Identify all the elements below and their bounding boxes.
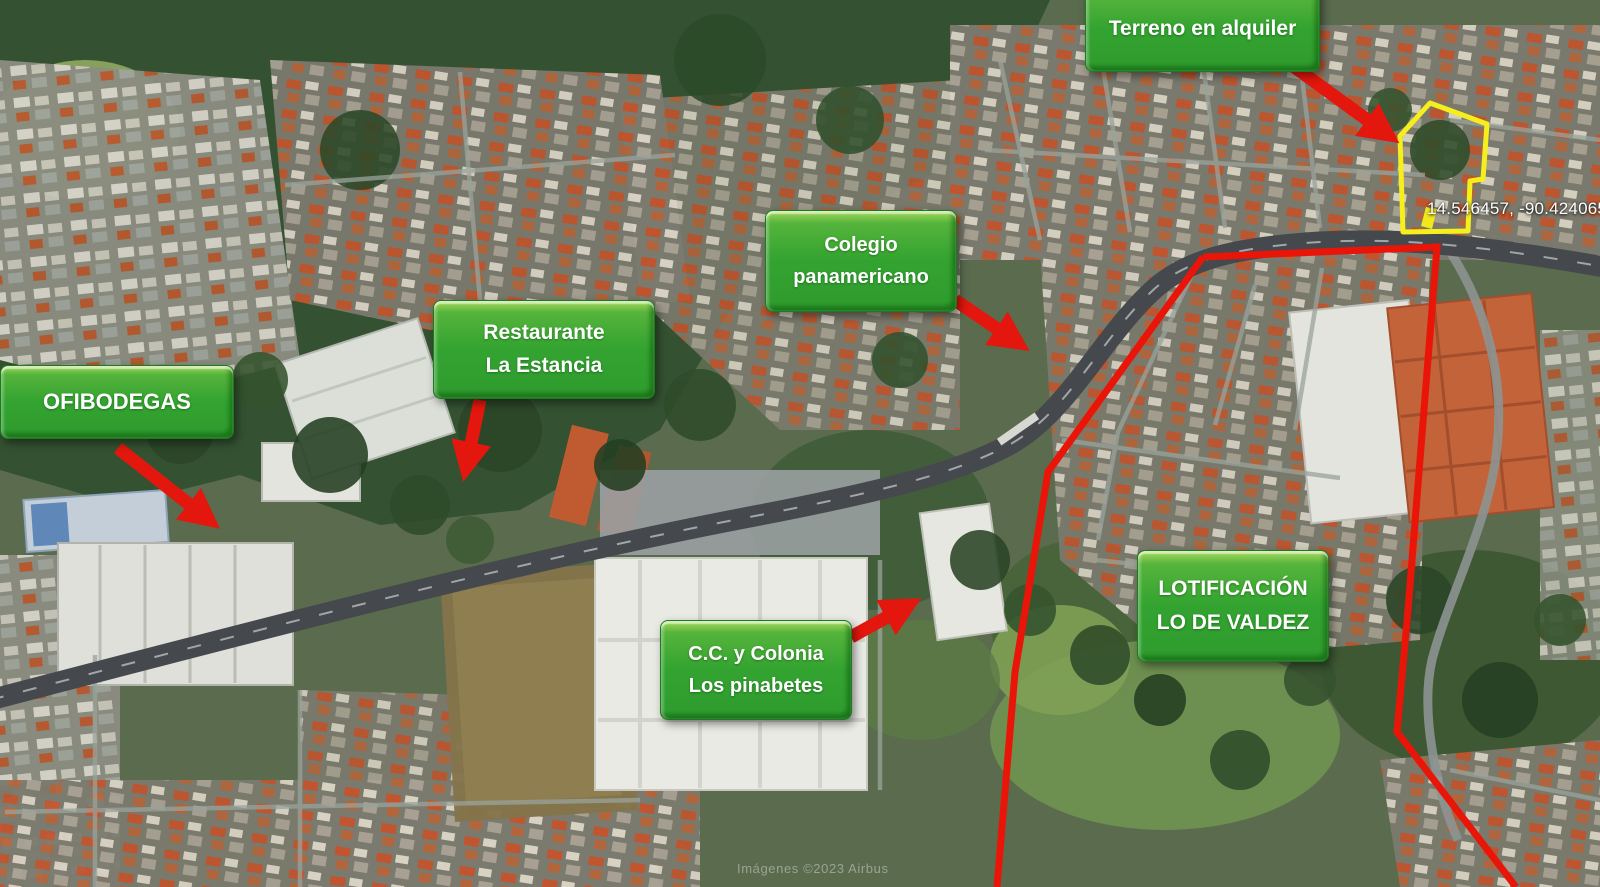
label-text: Terreno en alquiler [1109, 16, 1297, 42]
label-line: panamericano [793, 265, 929, 290]
label-terreno-en-alquiler: Terreno en alquiler [1085, 0, 1320, 72]
label-line: LOTIFICACIÓN [1158, 576, 1307, 602]
label-cc-y-colonia-los-pinabetes: C.C. y Colonia Los pinabetes [660, 620, 852, 720]
coordinates-text: 14.546457, -90.424065 [1427, 199, 1600, 219]
label-line: Colegio [824, 233, 897, 258]
label-text: OFIBODEGAS [43, 388, 191, 416]
label-line: Restaurante [483, 320, 604, 346]
satellite-basemap [0, 0, 1600, 887]
label-line: C.C. y Colonia [688, 642, 824, 667]
label-line: La Estancia [486, 353, 603, 379]
imagery-watermark: Imágenes ©2023 Airbus [737, 861, 889, 876]
label-line: LO DE VALDEZ [1157, 610, 1309, 636]
annotated-satellite-map: Terreno en alquiler Colegio panamericano… [0, 0, 1600, 887]
urban-zone [0, 60, 300, 400]
urban-zone [1380, 740, 1600, 887]
label-colegio-panamericano: Colegio panamericano [765, 210, 957, 312]
label-lotificacion-lo-de-valdez: LOTIFICACIÓN LO DE VALDEZ [1137, 550, 1329, 662]
label-restaurante-la-estancia: Restaurante La Estancia [433, 300, 655, 399]
label-ofibodegas: OFIBODEGAS [0, 365, 234, 439]
label-line: Los pinabetes [689, 674, 823, 699]
